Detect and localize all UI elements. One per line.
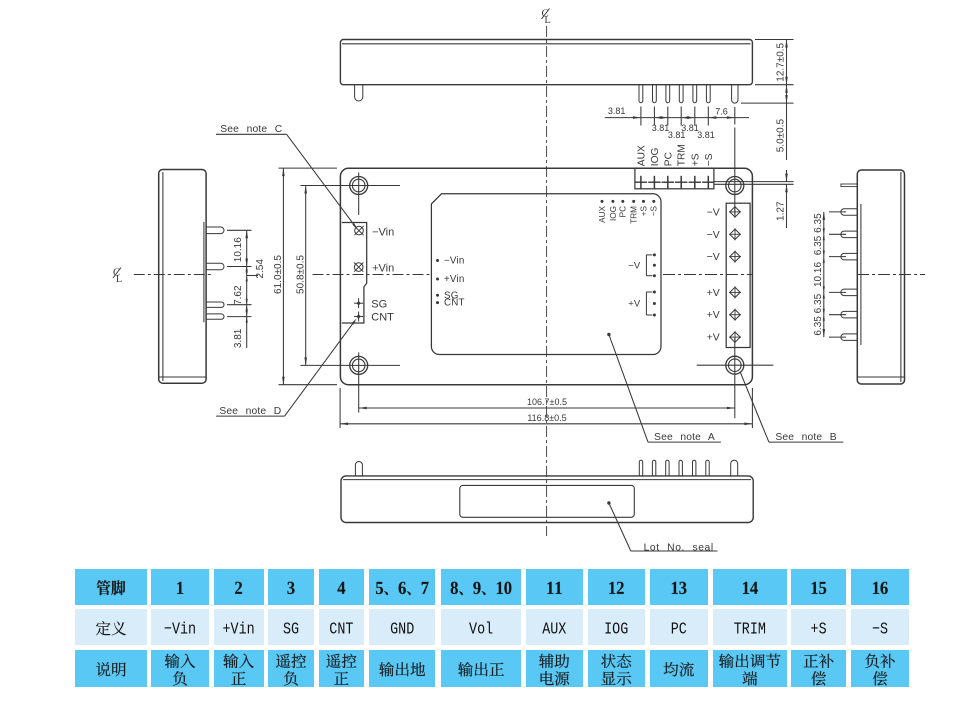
svg-text:61.0±0.5: 61.0±0.5 <box>273 255 284 294</box>
svg-text:Lot No. seal: Lot No. seal <box>644 542 714 553</box>
svg-text:10.16: 10.16 <box>813 262 824 287</box>
svg-text:1.27: 1.27 <box>775 201 786 221</box>
svg-text:10.16: 10.16 <box>233 237 244 262</box>
svg-text:7.6: 7.6 <box>715 107 728 117</box>
svg-text:3.81: 3.81 <box>233 328 244 348</box>
svg-text:12.7±0.5: 12.7±0.5 <box>775 42 786 81</box>
svg-text:6.35: 6.35 <box>813 293 824 313</box>
svg-text:−V: −V <box>628 261 641 272</box>
svg-text:106.7±0.5: 106.7±0.5 <box>527 397 567 407</box>
svg-text:6.35: 6.35 <box>813 316 824 336</box>
svg-text:TRM: TRM <box>677 144 688 166</box>
svg-text:−Vin: −Vin <box>372 226 394 238</box>
svg-text:SG: SG <box>371 298 387 310</box>
svg-text:IOG: IOG <box>609 206 618 221</box>
svg-text:See note A: See note A <box>654 432 715 443</box>
svg-text:TRM: TRM <box>630 206 639 224</box>
svg-text:2.54: 2.54 <box>255 259 266 279</box>
svg-text:−S: −S <box>650 205 659 216</box>
svg-text:50.8±0.5: 50.8±0.5 <box>296 255 307 294</box>
svg-text:CNT: CNT <box>444 298 465 309</box>
svg-text:+Vin: +Vin <box>444 274 465 285</box>
svg-text:+V: +V <box>707 287 720 299</box>
svg-text:L: L <box>544 15 550 26</box>
svg-text:−V: −V <box>707 251 720 263</box>
svg-text:L: L <box>116 274 122 285</box>
svg-text:AUX: AUX <box>598 205 607 222</box>
svg-text:+V: +V <box>707 309 720 321</box>
svg-text:−S: −S <box>704 153 715 166</box>
svg-text:+V: +V <box>707 332 720 344</box>
svg-text:See note D: See note D <box>219 406 281 417</box>
svg-text:+Vin: +Vin <box>372 263 394 275</box>
svg-text:6.35: 6.35 <box>813 235 824 255</box>
svg-text:See note B: See note B <box>775 432 836 443</box>
svg-text:3.81: 3.81 <box>608 106 626 116</box>
svg-text:+S: +S <box>639 205 648 216</box>
svg-text:116.8±0.5: 116.8±0.5 <box>527 413 566 423</box>
svg-text:CNT: CNT <box>371 312 394 324</box>
svg-text:5.0±0.5: 5.0±0.5 <box>775 119 786 153</box>
svg-text:3.81: 3.81 <box>652 123 670 133</box>
svg-text:See note C: See note C <box>220 124 282 135</box>
svg-text:6.35: 6.35 <box>813 213 824 233</box>
svg-text:AUX: AUX <box>636 145 647 166</box>
svg-text:−V: −V <box>707 206 720 218</box>
svg-text:+S: +S <box>690 153 701 166</box>
svg-text:3.81: 3.81 <box>668 130 686 140</box>
svg-text:PC: PC <box>619 206 628 217</box>
svg-text:IOG: IOG <box>650 147 661 166</box>
svg-text:PC: PC <box>663 152 674 166</box>
svg-text:7.62: 7.62 <box>233 285 244 305</box>
svg-text:−Vin: −Vin <box>444 256 465 267</box>
svg-text:3.81: 3.81 <box>697 130 715 140</box>
svg-text:+V: +V <box>628 299 641 310</box>
svg-text:−V: −V <box>707 229 720 241</box>
